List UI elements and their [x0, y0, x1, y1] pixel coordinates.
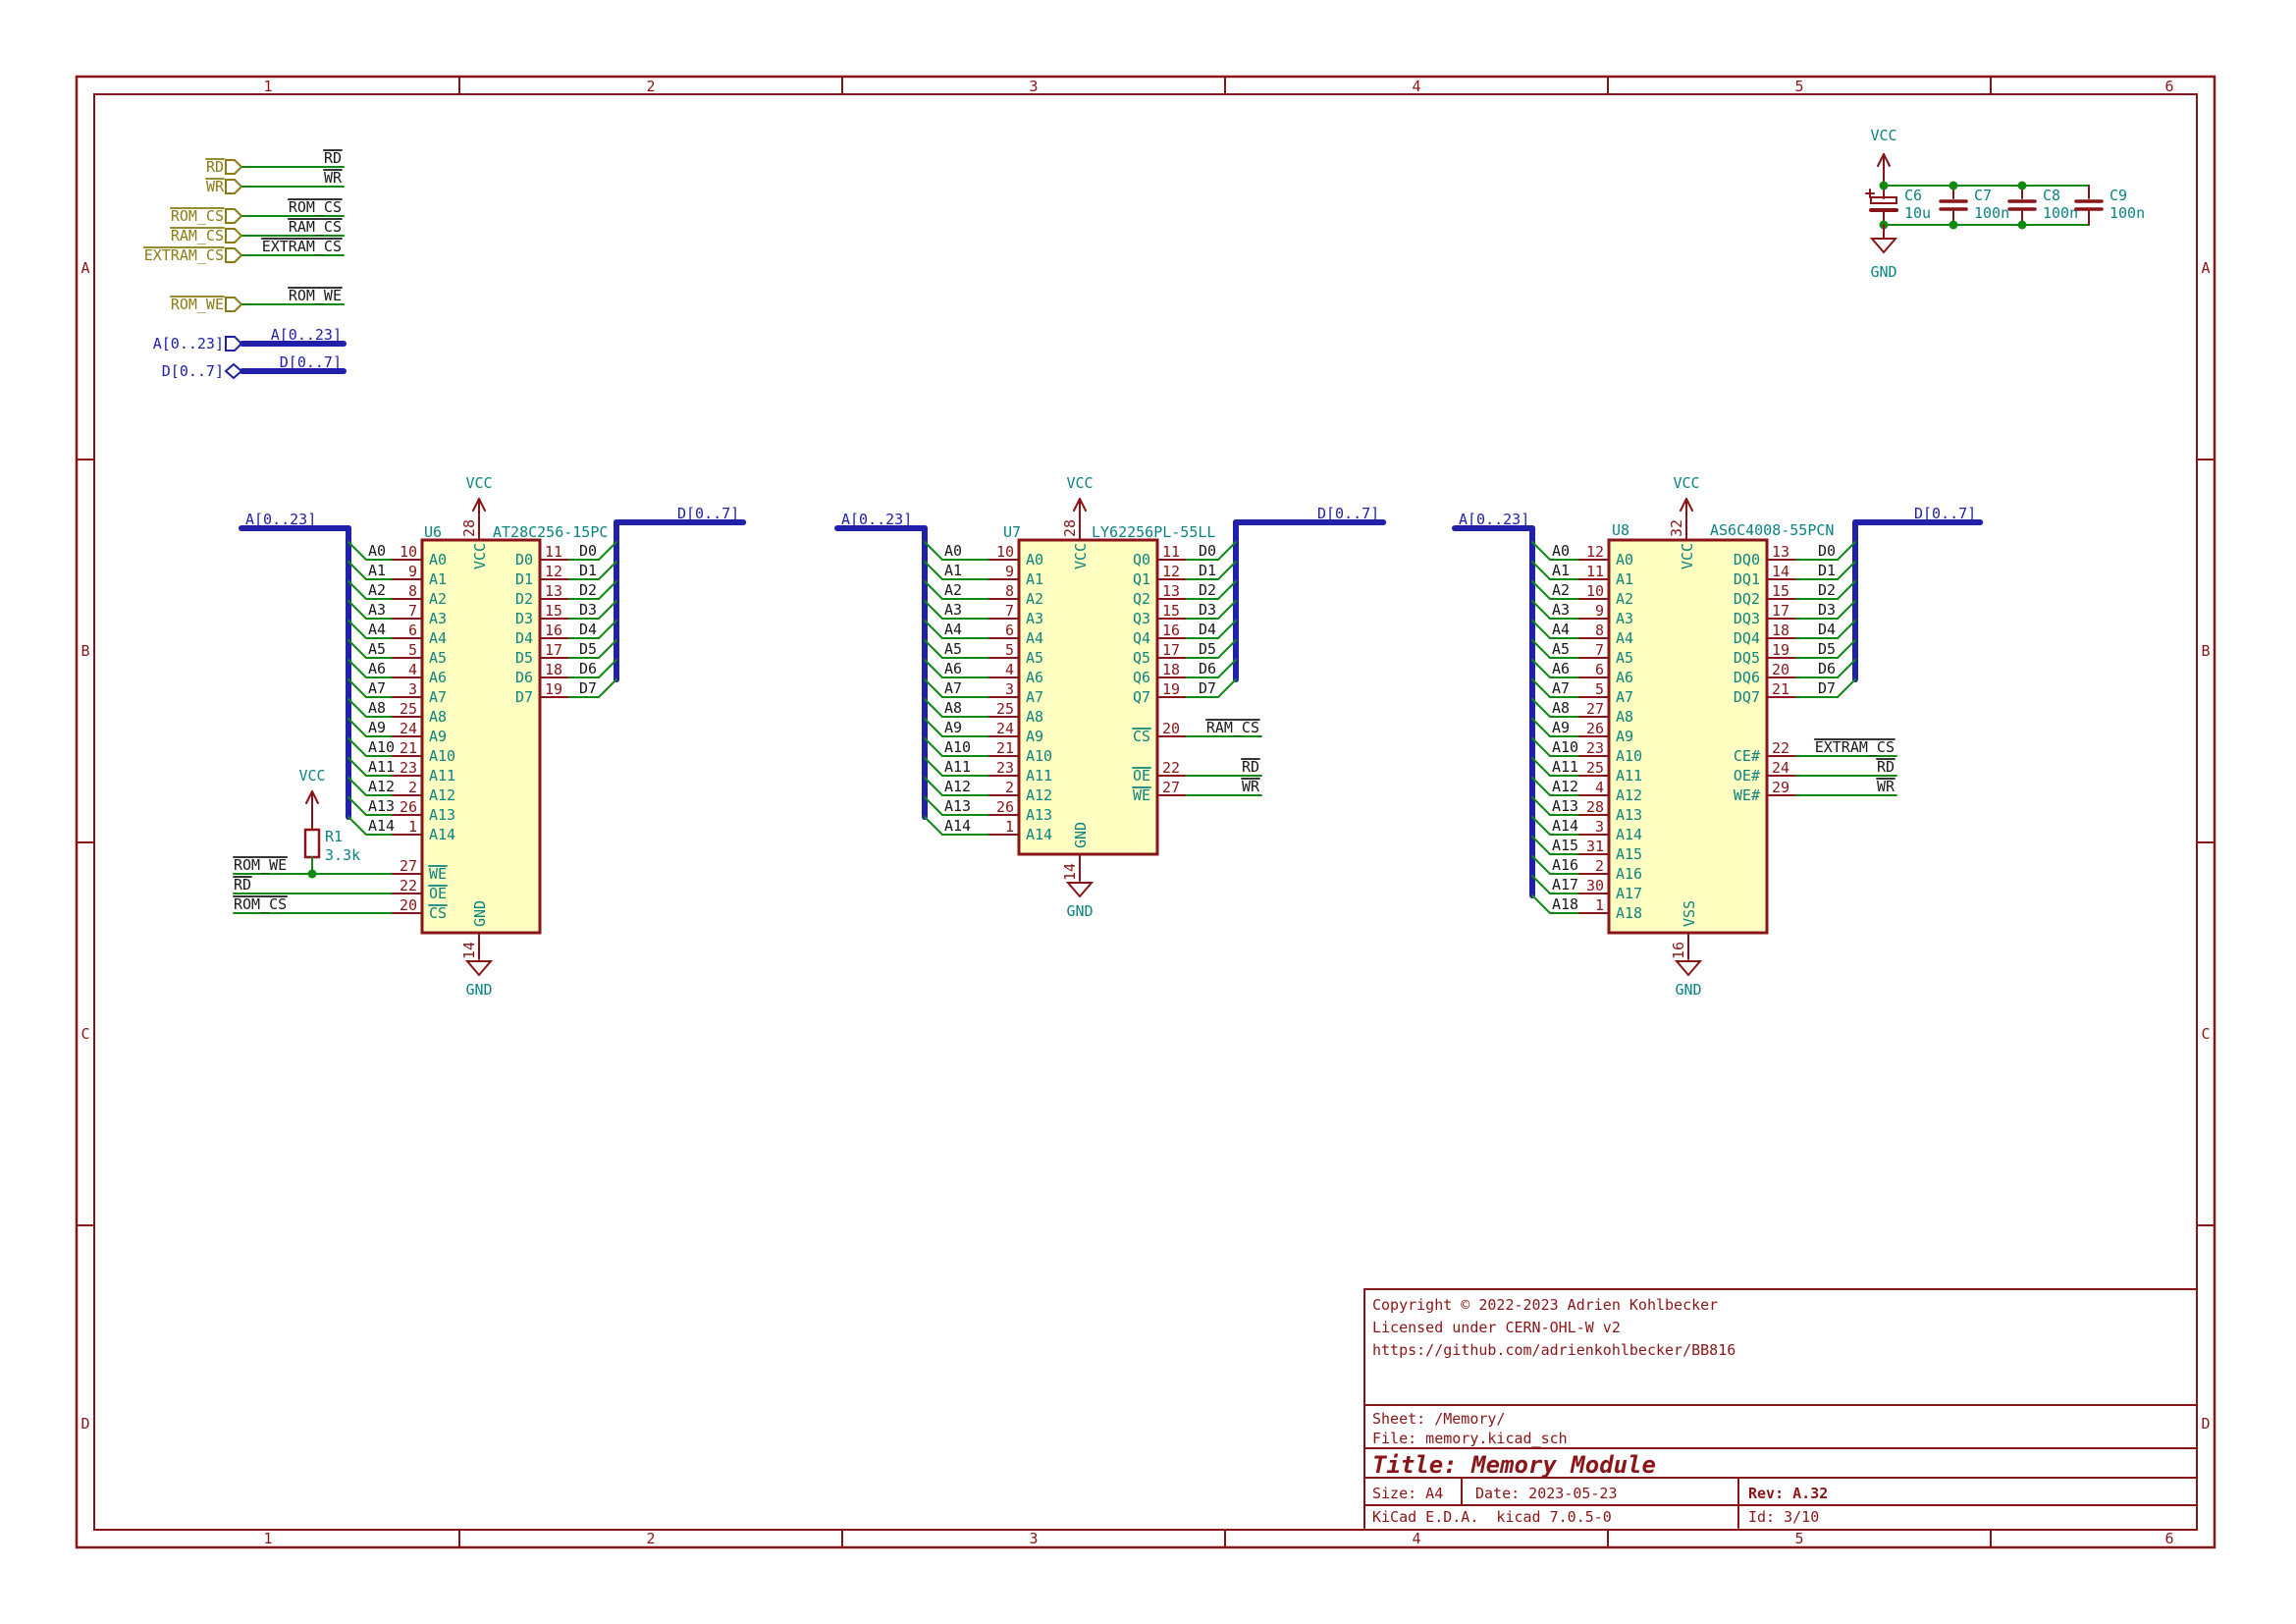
- net-label: A7: [368, 679, 386, 697]
- zone-row-label: A: [80, 259, 89, 277]
- bus-entry: [1838, 679, 1855, 697]
- ref-designator: R1: [325, 828, 343, 845]
- zone-col-label: 1: [263, 78, 272, 95]
- hier-label: ROM_CS: [171, 207, 224, 225]
- zone-col-label: 6: [2164, 78, 2173, 95]
- pin-number: 28: [1061, 519, 1079, 537]
- net-label: D[0..7]: [280, 353, 342, 371]
- pin-name: Q5: [1133, 649, 1150, 667]
- pin-number: 24: [400, 720, 417, 737]
- net-label: A5: [944, 640, 962, 658]
- pin-number: 1: [408, 818, 417, 836]
- hier-label-shape: [226, 229, 241, 243]
- pin-number: 5: [1595, 680, 1604, 698]
- junction-dot: [308, 870, 317, 879]
- net-label: A2: [944, 581, 962, 599]
- junction-dot: [1880, 182, 1889, 190]
- net-label: D6: [1199, 660, 1216, 677]
- ref-designator: U6: [424, 523, 442, 541]
- part-value: 10u: [1904, 204, 1931, 222]
- net-label: D5: [1818, 640, 1836, 658]
- pin-number: 11: [1586, 563, 1604, 580]
- pin-name: A1: [429, 570, 447, 588]
- pin-number: 12: [545, 563, 562, 580]
- part-value: 100n: [2109, 204, 2145, 222]
- resistor-r1: [305, 830, 319, 857]
- pin-number: 29: [1772, 779, 1789, 796]
- pin-name: A5: [1026, 649, 1043, 667]
- net-label: RD: [1242, 758, 1259, 776]
- pin-number: 26: [996, 798, 1014, 816]
- net-label: A11: [368, 758, 395, 776]
- pin-number: 13: [1772, 543, 1789, 561]
- pin-number: 19: [1162, 680, 1180, 698]
- zone-col-label: 2: [646, 1530, 655, 1547]
- zone-row-label: C: [80, 1025, 89, 1043]
- bus-entry: [1218, 679, 1236, 697]
- pin-name: A10: [1026, 747, 1052, 765]
- net-label: D0: [579, 542, 597, 560]
- net-label: D2: [1199, 581, 1216, 599]
- net-label: A6: [944, 660, 962, 677]
- pin-number: 9: [1595, 602, 1604, 620]
- gnd-symbol: [467, 961, 491, 975]
- zone-col-label: 4: [1412, 1530, 1420, 1547]
- ref-designator: C9: [2109, 187, 2127, 204]
- bus-label: D[0..7]: [1914, 505, 1976, 522]
- part-value: AT28C256-15PC: [493, 523, 608, 541]
- titleblock-comment: https://github.com/adrienkohlbecker/BB81…: [1372, 1341, 1735, 1359]
- net-label: D1: [1818, 562, 1836, 579]
- pin-name: A13: [1026, 806, 1052, 824]
- pin-name: Q7: [1133, 688, 1150, 706]
- net-label: A14: [368, 817, 395, 835]
- pin-number: 32: [1668, 519, 1685, 537]
- pin-number: 10: [996, 543, 1014, 561]
- part-value: AS6C4008-55PCN: [1710, 521, 1834, 539]
- net-label: A14: [1552, 817, 1578, 835]
- net-label: D4: [1818, 621, 1836, 638]
- pin-number: 23: [996, 759, 1014, 777]
- pin-number: 5: [1005, 641, 1014, 659]
- power-label-gnd: GND: [1675, 981, 1701, 999]
- net-label: A1: [1552, 562, 1570, 579]
- pin-number: 20: [1772, 661, 1789, 678]
- pin-name: A13: [429, 806, 455, 824]
- pin-number: 24: [1772, 759, 1789, 777]
- net-label: A3: [944, 601, 962, 619]
- zone-col-label: 5: [1794, 1530, 1803, 1547]
- pin-number: 10: [400, 543, 417, 561]
- bus-entry: [599, 679, 616, 697]
- zone-col-label: 4: [1412, 78, 1420, 95]
- net-label: A10: [368, 738, 395, 756]
- pin-number: 22: [1162, 759, 1180, 777]
- pin-number: 17: [1772, 602, 1789, 620]
- net-label: EXTRAM_CS: [262, 238, 342, 255]
- pin-number: 6: [1005, 622, 1014, 639]
- zone-col-label: 3: [1029, 1530, 1038, 1547]
- titleblock-id: Id: 3/10: [1748, 1508, 1819, 1526]
- titleblock-title: Title: Memory Module: [1372, 1451, 1656, 1479]
- pin-number: 11: [545, 543, 562, 561]
- ref-designator: U8: [1612, 521, 1629, 539]
- pin-number: 12: [1162, 563, 1180, 580]
- pin-number: 13: [545, 582, 562, 600]
- junction-dot: [2018, 182, 2027, 190]
- hier-label-shape: [226, 180, 241, 193]
- pin-name: A14: [1616, 826, 1642, 843]
- pin-number: 27: [1586, 700, 1604, 718]
- hier-label-shape: [226, 160, 241, 174]
- net-label: A14: [944, 817, 971, 835]
- pin-number: 21: [1772, 680, 1789, 698]
- net-label: A5: [368, 640, 386, 658]
- pin-name: VCC: [1072, 543, 1090, 569]
- pin-name: A12: [429, 786, 455, 804]
- bus-entry: [925, 817, 942, 835]
- net-label: EXTRAM_CS: [1815, 738, 1895, 756]
- pin-number: 23: [1586, 739, 1604, 757]
- power-label-vcc: VCC: [1066, 474, 1093, 492]
- pin-number: 28: [460, 519, 478, 537]
- net-label: WR: [324, 169, 343, 187]
- pin-name: A2: [1616, 590, 1633, 608]
- pin-number: 13: [1162, 582, 1180, 600]
- zone-row-label: D: [80, 1415, 89, 1433]
- net-label: D7: [1199, 679, 1216, 697]
- pin-number: 7: [408, 602, 417, 620]
- pin-name: A2: [1026, 590, 1043, 608]
- pin-number: 8: [1005, 582, 1014, 600]
- power-label-vcc: VCC: [1673, 474, 1699, 492]
- titleblock-file: File: memory.kicad_sch: [1372, 1430, 1568, 1447]
- pin-name: OE: [429, 885, 447, 902]
- pin-number: 25: [400, 700, 417, 718]
- pin-name: A6: [1616, 669, 1633, 686]
- pin-name: GND: [471, 900, 489, 927]
- pin-number: 17: [1162, 641, 1180, 659]
- pin-name: A7: [429, 688, 447, 706]
- pin-number: 3: [408, 680, 417, 698]
- gnd-symbol: [1872, 239, 1896, 252]
- pin-name: D5: [515, 649, 533, 667]
- pin-number: 17: [545, 641, 562, 659]
- pin-name: A15: [1616, 845, 1642, 863]
- pin-name: A1: [1026, 570, 1043, 588]
- pin-number: 23: [400, 759, 417, 777]
- pin-name: A18: [1616, 904, 1642, 922]
- pin-name: A7: [1616, 688, 1633, 706]
- capacitor-plate: [1871, 197, 1896, 203]
- pin-number: 2: [408, 779, 417, 796]
- pin-number: 25: [1586, 759, 1604, 777]
- net-label: A15: [1552, 837, 1578, 854]
- pin-name: DQ4: [1734, 629, 1760, 647]
- pin-number: 8: [1595, 622, 1604, 639]
- pin-number: 10: [1586, 582, 1604, 600]
- pin-name: DQ2: [1734, 590, 1760, 608]
- pin-name: A6: [429, 669, 447, 686]
- pin-number: 14: [1772, 563, 1789, 580]
- net-label: WR: [1877, 778, 1896, 795]
- net-label: RD: [234, 876, 251, 893]
- pin-name: Q0: [1133, 551, 1150, 568]
- net-label: A11: [1552, 758, 1578, 776]
- titleblock-comment: Copyright © 2022-2023 Adrien Kohlbecker: [1372, 1296, 1718, 1314]
- net-label: D0: [1818, 542, 1836, 560]
- bus-entry: [348, 817, 366, 835]
- hier-label: ROM_WE: [171, 296, 224, 313]
- pin-number: 16: [1162, 622, 1180, 639]
- net-label: D7: [1818, 679, 1836, 697]
- pin-number: 22: [400, 877, 417, 894]
- net-label: A10: [1552, 738, 1578, 756]
- pin-number: 4: [408, 661, 417, 678]
- schematic-sheet: 112233445566AABBCCDDCopyright © 2022-202…: [0, 0, 2296, 1624]
- net-label: D4: [579, 621, 597, 638]
- pin-name: D3: [515, 610, 533, 627]
- net-label: D3: [579, 601, 597, 619]
- hier-label-shape: [226, 209, 241, 223]
- pin-name: A9: [1616, 728, 1633, 745]
- pin-name: A2: [429, 590, 447, 608]
- pin-number: 21: [996, 739, 1014, 757]
- pin-name: A8: [1616, 708, 1633, 726]
- bus-label: A[0..23]: [1459, 511, 1529, 528]
- ref-designator: U7: [1003, 523, 1021, 541]
- pin-number: 26: [400, 798, 417, 816]
- net-label: A12: [368, 778, 395, 795]
- pin-name: A12: [1616, 786, 1642, 804]
- pin-name: WE: [429, 865, 447, 883]
- pin-number: 16: [545, 622, 562, 639]
- pin-number: 25: [996, 700, 1014, 718]
- net-label: A5: [1552, 640, 1570, 658]
- pin-name: A3: [429, 610, 447, 627]
- zone-row-label: B: [2201, 642, 2210, 660]
- pin-name: A4: [429, 629, 447, 647]
- pin-name: Q1: [1133, 570, 1150, 588]
- hier-label: RAM_CS: [171, 227, 224, 244]
- pin-name: A11: [1616, 767, 1642, 785]
- net-label: A6: [1552, 660, 1570, 677]
- pin-number: 27: [400, 857, 417, 875]
- power-label-vcc: VCC: [1870, 127, 1896, 144]
- pin-name: GND: [1072, 822, 1090, 848]
- pin-name: Q4: [1133, 629, 1150, 647]
- titleblock-tool: KiCad E.D.A. kicad 7.0.5-0: [1372, 1508, 1612, 1526]
- pin-number: 1: [1005, 818, 1014, 836]
- net-label: ROM_CS: [234, 895, 287, 913]
- net-label: A8: [1552, 699, 1570, 717]
- pin-number: 15: [1162, 602, 1180, 620]
- bus-entry: [1532, 895, 1550, 913]
- pin-name: A10: [1616, 747, 1642, 765]
- net-label: A3: [368, 601, 386, 619]
- pin-name: VSS: [1681, 900, 1698, 927]
- pin-number: 4: [1005, 661, 1014, 678]
- net-label: ROM_WE: [234, 856, 287, 874]
- pin-number: 28: [1586, 798, 1604, 816]
- net-label: D2: [1818, 581, 1836, 599]
- net-label: A12: [944, 778, 971, 795]
- ref-designator: C6: [1904, 187, 1922, 204]
- pin-number: 3: [1005, 680, 1014, 698]
- pin-name: A9: [1026, 728, 1043, 745]
- pin-name: D6: [515, 669, 533, 686]
- part-value: 3.3k: [325, 846, 360, 864]
- pin-name: D0: [515, 551, 533, 568]
- pin-number: 20: [400, 896, 417, 914]
- bus-label: A[0..23]: [841, 511, 912, 528]
- pin-name: WE#: [1734, 786, 1760, 804]
- pin-number: 4: [1595, 779, 1604, 796]
- pin-number: 7: [1595, 641, 1604, 659]
- titleblock-comment: Licensed under CERN-OHL-W v2: [1372, 1319, 1621, 1336]
- pin-name: A5: [429, 649, 447, 667]
- net-label: A[0..23]: [271, 326, 342, 344]
- net-label: A1: [368, 562, 386, 579]
- net-label: D6: [579, 660, 597, 677]
- net-label: D2: [579, 581, 597, 599]
- pin-number: 5: [408, 641, 417, 659]
- net-label: A12: [1552, 778, 1578, 795]
- pin-number: 20: [1162, 720, 1180, 737]
- pin-name: A12: [1026, 786, 1052, 804]
- titleblock-sheet: Sheet: /Memory/: [1372, 1410, 1505, 1428]
- net-label: A16: [1552, 856, 1578, 874]
- zone-col-label: 3: [1029, 78, 1038, 95]
- net-label: ROM_CS: [289, 198, 342, 216]
- pin-name: DQ6: [1734, 669, 1760, 686]
- zone-row-label: C: [2201, 1025, 2210, 1043]
- part-value: 100n: [1974, 204, 2009, 222]
- net-label: A13: [368, 797, 395, 815]
- net-label: A18: [1552, 895, 1578, 913]
- pin-number: 14: [460, 942, 478, 959]
- net-label: A0: [1552, 542, 1570, 560]
- pin-number: 1: [1595, 896, 1604, 914]
- power-label-gnd: GND: [465, 981, 492, 999]
- gnd-symbol: [1677, 961, 1700, 975]
- hier-label-shape: [226, 364, 241, 378]
- titleblock-rev: Rev: A.32: [1748, 1485, 1828, 1502]
- hier-label-shape: [226, 248, 241, 262]
- pin-name: A14: [429, 826, 455, 843]
- pin-name: Q6: [1133, 669, 1150, 686]
- pin-number: 14: [1061, 863, 1079, 881]
- pin-number: 27: [1162, 779, 1180, 796]
- part-value: 100n: [2043, 204, 2078, 222]
- net-label: A1: [944, 562, 962, 579]
- pin-number: 19: [1772, 641, 1789, 659]
- titleblock-date: Date: 2023-05-23: [1475, 1485, 1618, 1502]
- net-label: A9: [368, 719, 386, 736]
- zone-col-label: 2: [646, 78, 655, 95]
- pin-number: 26: [1586, 720, 1604, 737]
- pin-number: 6: [408, 622, 417, 639]
- pin-number: 18: [1162, 661, 1180, 678]
- net-label: A13: [944, 797, 971, 815]
- pin-name: DQ1: [1734, 570, 1760, 588]
- net-label: A6: [368, 660, 386, 677]
- pin-name: OE: [1133, 767, 1150, 785]
- junction-dot: [1949, 182, 1958, 190]
- pin-number: 15: [1772, 582, 1789, 600]
- hier-label: A[0..23]: [153, 335, 224, 352]
- pin-name: A0: [1616, 551, 1633, 568]
- pin-name: OE#: [1734, 767, 1760, 785]
- net-label: A4: [944, 621, 962, 638]
- net-label: RD: [324, 149, 342, 167]
- pin-name: CE#: [1734, 747, 1760, 765]
- pin-name: A17: [1616, 885, 1642, 902]
- net-label: WR: [1242, 778, 1260, 795]
- net-label: A3: [1552, 601, 1570, 619]
- pin-name: A16: [1616, 865, 1642, 883]
- pin-number: 24: [996, 720, 1014, 737]
- pin-name: A1: [1616, 570, 1633, 588]
- pin-name: D2: [515, 590, 533, 608]
- net-label: A2: [368, 581, 386, 599]
- pin-name: A0: [429, 551, 447, 568]
- net-label: A4: [1552, 621, 1570, 638]
- net-label: A17: [1552, 876, 1578, 893]
- pin-number: 22: [1772, 739, 1789, 757]
- pin-name: A8: [429, 708, 447, 726]
- pin-name: A4: [1026, 629, 1043, 647]
- net-label: A0: [944, 542, 962, 560]
- pin-number: 9: [408, 563, 417, 580]
- pin-name: A5: [1616, 649, 1633, 667]
- hier-label: WR: [206, 178, 225, 195]
- ref-designator: C7: [1974, 187, 1992, 204]
- pin-number: 9: [1005, 563, 1014, 580]
- net-label: D5: [1199, 640, 1216, 658]
- pin-number: 16: [1670, 942, 1687, 959]
- pin-number: 18: [545, 661, 562, 678]
- pin-number: 12: [1586, 543, 1604, 561]
- zone-row-label: B: [80, 642, 89, 660]
- pin-name: DQ0: [1734, 551, 1760, 568]
- net-label: D3: [1818, 601, 1836, 619]
- pin-name: A9: [429, 728, 447, 745]
- junction-dot: [1949, 221, 1958, 230]
- pin-name: A3: [1616, 610, 1633, 627]
- ref-designator: C8: [2043, 187, 2060, 204]
- net-label: RAM_CS: [289, 218, 342, 236]
- pin-number: 2: [1005, 779, 1014, 796]
- net-label: D6: [1818, 660, 1836, 677]
- pin-name: Q2: [1133, 590, 1150, 608]
- pin-number: 21: [400, 739, 417, 757]
- net-label: D4: [1199, 621, 1216, 638]
- power-label-gnd: GND: [1066, 902, 1093, 920]
- net-label: A11: [944, 758, 971, 776]
- net-label: A4: [368, 621, 386, 638]
- pin-number: 3: [1595, 818, 1604, 836]
- net-label: A7: [1552, 679, 1570, 697]
- pin-name: A10: [429, 747, 455, 765]
- bus-label: D[0..7]: [677, 505, 739, 522]
- bus-label: D[0..7]: [1317, 505, 1379, 522]
- net-label: A9: [1552, 719, 1570, 736]
- pin-number: 2: [1595, 857, 1604, 875]
- net-label: A8: [944, 699, 962, 717]
- pin-number: 30: [1586, 877, 1604, 894]
- zone-col-label: 5: [1794, 78, 1803, 95]
